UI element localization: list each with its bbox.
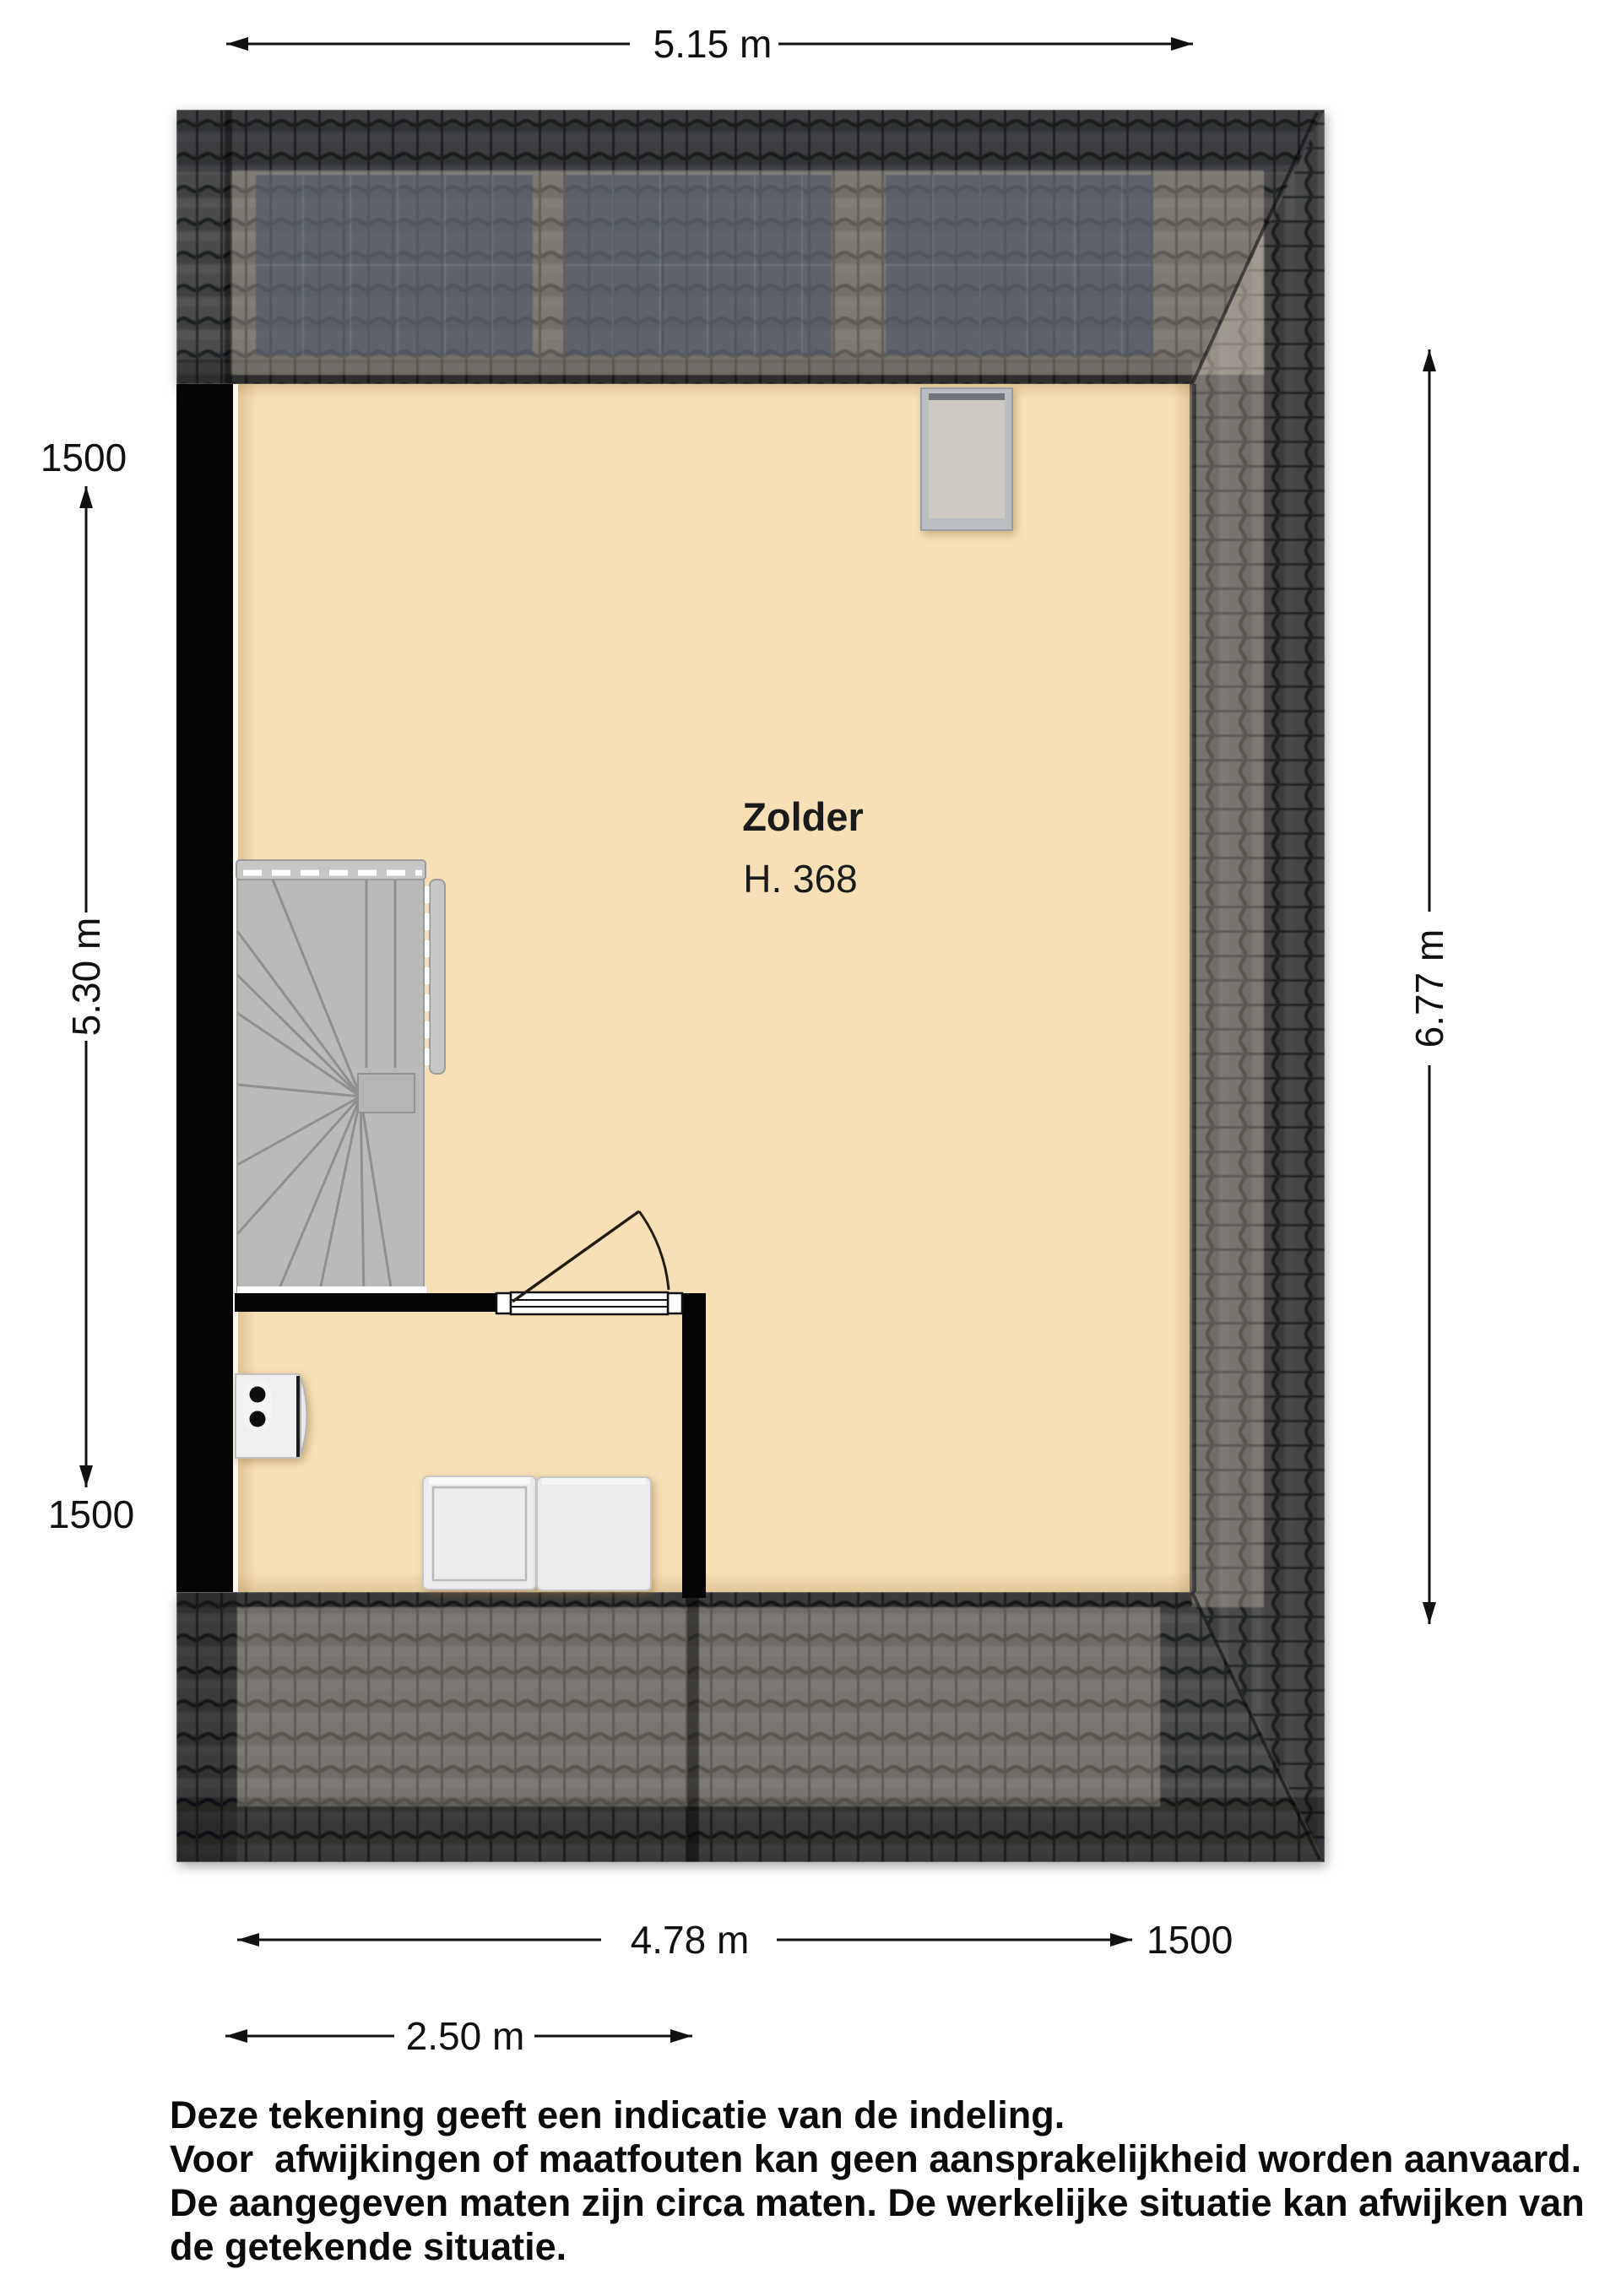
svg-text:1500: 1500 [41, 436, 127, 479]
svg-text:5.15 m: 5.15 m [653, 22, 773, 66]
svg-text:Voor afwijkingen of maatfoute: Voor afwijkingen of maatfouten kan geen … [170, 2137, 1581, 2180]
svg-text:Zolder: Zolder [742, 794, 864, 839]
svg-text:4.78 m: 4.78 m [631, 1918, 750, 1962]
svg-text:6.77 m: 6.77 m [1407, 929, 1451, 1048]
svg-text:2.50 m: 2.50 m [406, 2014, 525, 2058]
svg-text:de getekende situatie.: de getekende situatie. [170, 2225, 567, 2268]
svg-text:Deze tekening geeft een indica: Deze tekening geeft een indicatie van de… [170, 2093, 1065, 2136]
svg-text:De aangegeven maten zijn circa: De aangegeven maten zijn circa maten. De… [170, 2181, 1585, 2224]
svg-text:5.30 m: 5.30 m [64, 918, 108, 1037]
svg-text:1500: 1500 [1147, 1918, 1233, 1962]
svg-text:1500: 1500 [48, 1492, 134, 1536]
svg-text:H. 368: H. 368 [743, 857, 858, 901]
